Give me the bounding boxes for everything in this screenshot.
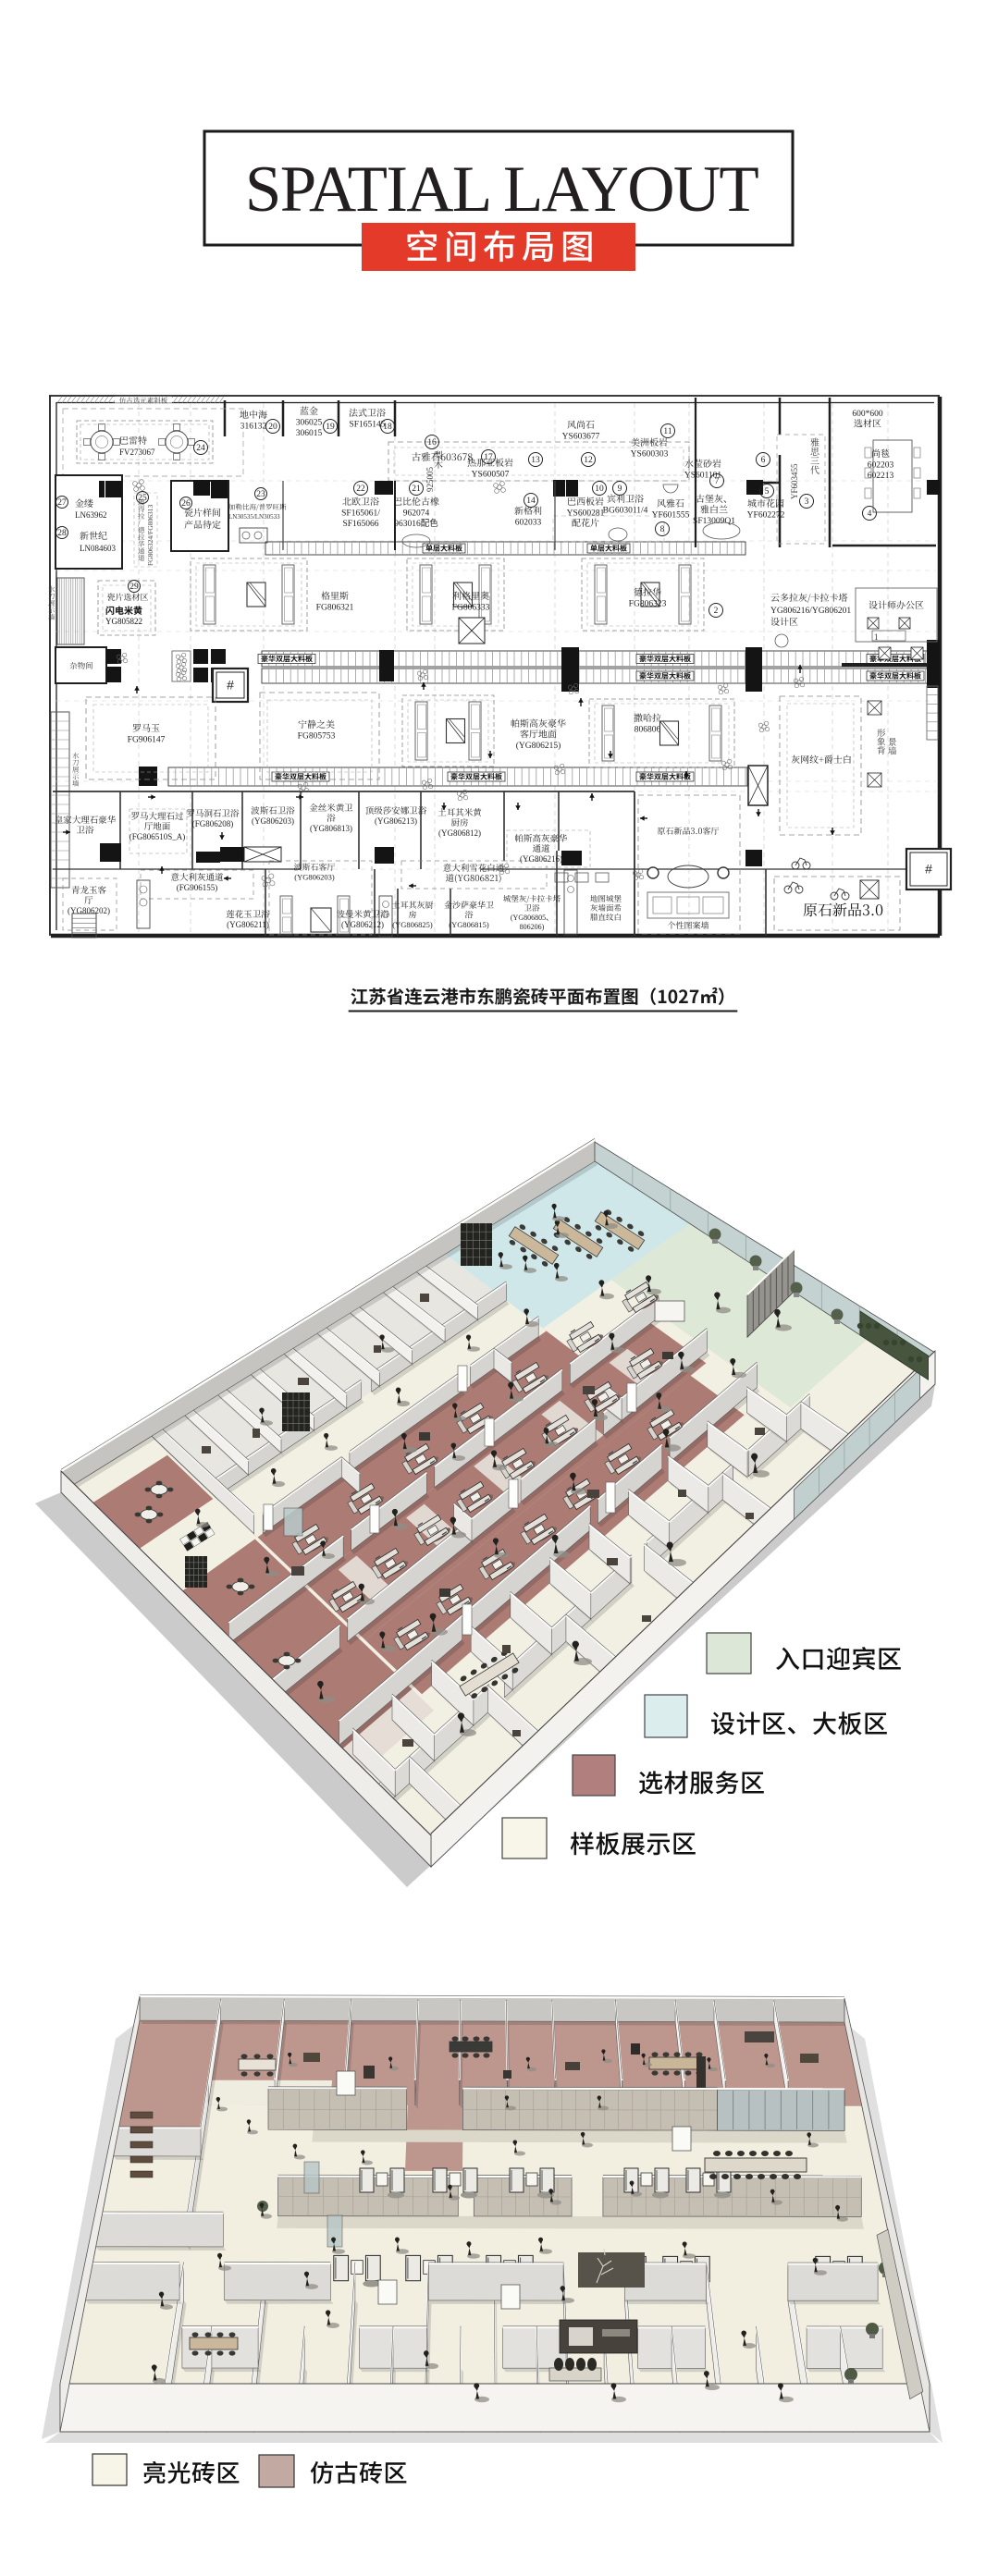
svg-text:21: 21	[412, 485, 421, 494]
svg-text:LN084603: LN084603	[80, 544, 116, 553]
svg-text:(YG806805、: (YG806805、	[511, 914, 553, 922]
svg-text:26: 26	[181, 499, 191, 509]
svg-text:602033: 602033	[515, 519, 542, 528]
svg-text:FG906147: FG906147	[128, 736, 166, 745]
svg-text:YF601555: YF601555	[652, 511, 690, 521]
svg-text:806806: 806806	[635, 726, 661, 735]
svg-text:SF165061/: SF165061/	[341, 509, 380, 519]
svg-text:(YG806825): (YG806825)	[392, 920, 433, 929]
svg-text:(YG806212): (YG806212)	[341, 920, 384, 929]
svg-text:FG806323: FG806323	[629, 600, 667, 609]
svg-text:YS600281: YS600281	[567, 509, 605, 519]
svg-text:YF603455: YF603455	[790, 463, 799, 499]
svg-text:(YG806202): (YG806202)	[68, 906, 110, 915]
svg-text:FV273067: FV273067	[119, 448, 155, 457]
svg-text:SF165066: SF165066	[342, 520, 378, 529]
svg-text:(YG806215): (YG806215)	[516, 741, 561, 751]
svg-text:BG603011/4: BG603011/4	[603, 507, 648, 516]
svg-text:(YG806213): (YG806213)	[375, 816, 417, 826]
svg-text:14: 14	[526, 497, 536, 506]
svg-text:2: 2	[714, 607, 719, 616]
svg-text:SPATIAL LAYOUT: SPATIAL LAYOUT	[245, 153, 758, 226]
svg-text:600*600: 600*600	[852, 410, 883, 419]
svg-text:6: 6	[761, 456, 766, 465]
svg-text:(FG906155): (FG906155)	[177, 883, 218, 892]
svg-text:925005: 925005	[425, 467, 435, 493]
svg-text:SF13009Q1: SF13009Q1	[693, 517, 735, 526]
svg-text:9: 9	[618, 485, 622, 494]
svg-text:SF165145: SF165145	[349, 421, 385, 430]
svg-text:(YG806216): (YG806216)	[520, 854, 562, 864]
svg-text:YS603677: YS603677	[562, 433, 600, 442]
svg-text:22: 22	[356, 485, 365, 494]
svg-text:306015: 306015	[296, 429, 323, 438]
svg-text:YS600507: YS600507	[472, 471, 510, 480]
svg-text:11: 11	[663, 427, 671, 436]
svg-text:3: 3	[805, 497, 809, 507]
svg-text:13: 13	[531, 456, 540, 465]
svg-text:FG805753: FG805753	[298, 732, 336, 742]
svg-text:(FG806510S_A): (FG806510S_A)	[129, 832, 186, 841]
svg-text:17: 17	[484, 453, 493, 462]
svg-text:316132: 316132	[240, 423, 267, 432]
svg-text:963016配色: 963016配色	[394, 518, 438, 529]
svg-text:#: #	[227, 678, 234, 693]
svg-text:(FG806208): (FG806208)	[192, 819, 234, 828]
svg-text:7: 7	[715, 477, 720, 486]
svg-text:(YG806203): (YG806203)	[252, 816, 294, 826]
svg-text:18: 18	[383, 423, 392, 432]
svg-text:28: 28	[57, 529, 67, 538]
svg-text:LN63962: LN63962	[75, 510, 107, 520]
svg-text:(YG806815): (YG806815)	[449, 920, 489, 929]
svg-text:29: 29	[129, 583, 139, 592]
svg-text:1: 1	[874, 632, 879, 642]
svg-text:806206): 806206)	[520, 923, 545, 931]
svg-text:FG806333: FG806333	[452, 604, 490, 613]
svg-text:20: 20	[268, 423, 277, 432]
svg-text:(YG806813): (YG806813)	[310, 824, 352, 833]
svg-text:YG805822: YG805822	[105, 617, 142, 626]
svg-text:YG806216/YG806201: YG806216/YG806201	[770, 607, 851, 616]
svg-text:306025: 306025	[296, 419, 323, 428]
svg-text:12: 12	[584, 456, 593, 465]
svg-text:LN30535/LN30533: LN30535/LN30533	[228, 513, 280, 521]
svg-text:5: 5	[765, 487, 770, 497]
svg-text:#: #	[925, 862, 932, 877]
svg-text:(YG806211): (YG806211)	[227, 920, 269, 929]
svg-text:27: 27	[57, 498, 67, 508]
svg-text:23: 23	[256, 490, 265, 499]
svg-text:(YG806203): (YG806203)	[294, 873, 335, 882]
svg-text:24: 24	[196, 444, 205, 453]
svg-text:4: 4	[868, 509, 872, 519]
svg-text:16: 16	[427, 438, 437, 448]
svg-text:10: 10	[595, 485, 604, 494]
svg-text:FG806321: FG806321	[316, 604, 354, 613]
svg-text:YS600303: YS600303	[631, 450, 669, 460]
svg-text:962074: 962074	[403, 509, 430, 519]
svg-text:YF602272: YF602272	[747, 511, 785, 521]
svg-text:(YG806812): (YG806812)	[438, 828, 481, 838]
svg-text:FG806324/FG806313: FG806324/FG806313	[146, 504, 154, 566]
svg-text:19: 19	[326, 423, 335, 432]
svg-text:8: 8	[660, 525, 665, 534]
